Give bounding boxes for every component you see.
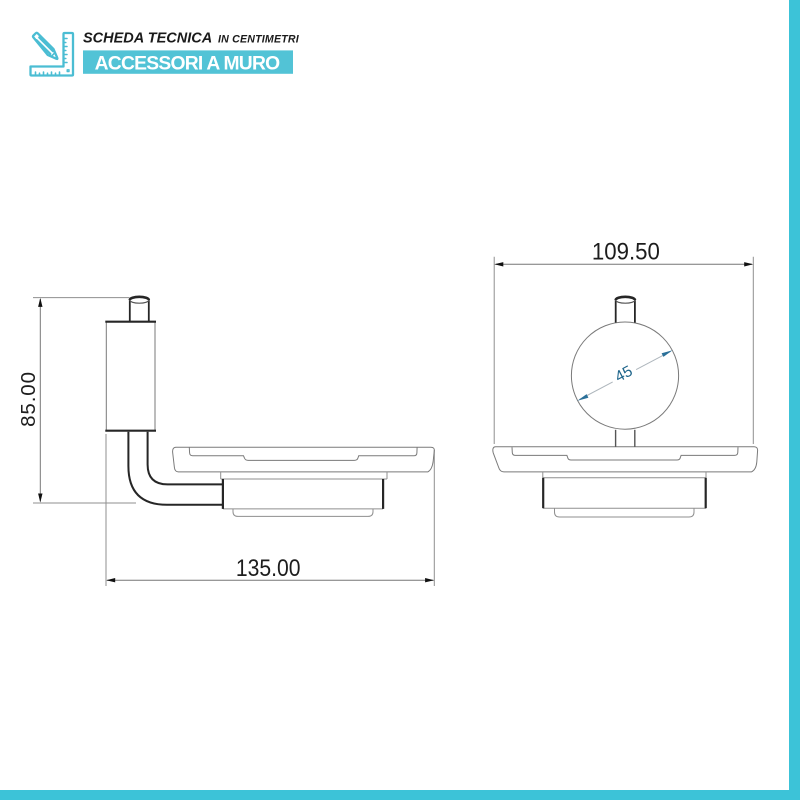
svg-text:135.00: 135.00	[236, 553, 301, 581]
svg-text:109.50: 109.50	[592, 238, 660, 265]
svg-text:ACCESSORI A MURO: ACCESSORI A MURO	[95, 53, 280, 74]
svg-text:IN CENTIMETRI: IN CENTIMETRI	[218, 33, 300, 45]
svg-text:SCHEDA TECNICA: SCHEDA TECNICA	[83, 30, 212, 46]
svg-text:85.00: 85.00	[17, 371, 40, 427]
